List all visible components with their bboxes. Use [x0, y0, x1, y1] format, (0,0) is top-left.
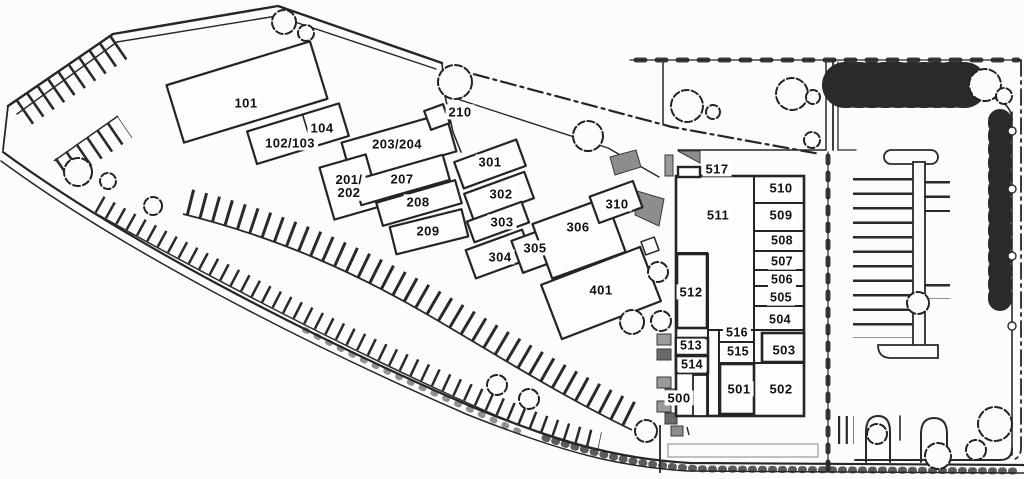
tree — [925, 443, 951, 469]
shaded-patch — [610, 150, 641, 175]
parking-island — [913, 162, 925, 348]
tree — [651, 311, 671, 331]
building-label-306[interactable]: 306 — [564, 219, 593, 234]
sidewalk-strip — [668, 444, 818, 457]
parking-island — [878, 345, 938, 358]
building-label-208[interactable]: 208 — [404, 194, 433, 209]
building-label-505[interactable]: 505 — [767, 291, 795, 306]
unit-500-strip — [693, 375, 707, 416]
parking-island — [884, 150, 938, 164]
tree — [620, 310, 644, 334]
tree — [635, 420, 657, 442]
tree — [804, 132, 820, 148]
building-label-506[interactable]: 506 — [768, 273, 796, 288]
tree — [100, 173, 116, 189]
tree — [978, 407, 1012, 441]
building-label-210[interactable]: 210 — [446, 104, 475, 119]
building-label-509[interactable]: 509 — [767, 207, 796, 222]
building-label-304[interactable]: 304 — [486, 249, 515, 264]
building-label-500[interactable]: 500 — [665, 390, 694, 405]
tree — [806, 90, 820, 104]
tree — [867, 424, 887, 444]
tree — [776, 78, 808, 110]
building-label-512[interactable]: 512 — [677, 284, 706, 299]
tree — [648, 262, 668, 282]
tree — [671, 90, 703, 122]
building-label-209[interactable]: 209 — [414, 223, 443, 238]
building-label-302[interactable]: 302 — [487, 186, 516, 201]
tree — [519, 389, 539, 409]
parking-row — [24, 46, 121, 113]
shaded-patch — [678, 151, 700, 163]
building-label-507[interactable]: 507 — [768, 255, 796, 270]
building-label-515[interactable]: 515 — [724, 345, 752, 360]
site-plan-drawing — [0, 0, 1024, 479]
site-plan: 101 102/103 104 201/ 202 203/204 207 208… — [0, 0, 1024, 479]
building-label-305[interactable]: 305 — [521, 240, 550, 255]
tree — [487, 375, 507, 395]
tree — [298, 25, 314, 41]
tree — [907, 292, 929, 314]
shaded-patch — [665, 155, 673, 176]
building-label-517[interactable]: 517 — [703, 161, 732, 176]
building-label-104[interactable]: 104 — [308, 120, 337, 135]
tree — [144, 197, 162, 215]
building-label-310[interactable]: 310 — [603, 196, 632, 211]
building-label-510[interactable]: 510 — [767, 180, 796, 195]
tree — [438, 65, 472, 99]
dash-dot-property-line — [447, 67, 820, 154]
building-label-301[interactable]: 301 — [476, 154, 505, 169]
building-label-303[interactable]: 303 — [488, 214, 517, 229]
building-label-511[interactable]: 511 — [704, 207, 732, 222]
tree — [966, 440, 986, 460]
tree — [573, 121, 603, 151]
building-label-503[interactable]: 503 — [770, 342, 799, 357]
tree — [996, 88, 1012, 104]
building-label-513[interactable]: 513 — [677, 339, 705, 354]
building-label-201-202[interactable]: 201/ 202 — [333, 172, 366, 201]
shed-footprint — [641, 237, 659, 255]
building-label-514[interactable]: 514 — [678, 358, 706, 373]
building-label-101[interactable]: 101 — [232, 95, 261, 110]
building-label-102-103[interactable]: 102/103 — [262, 135, 318, 150]
building-label-207[interactable]: 207 — [388, 171, 417, 186]
building-label-516[interactable]: 516 — [723, 326, 751, 341]
building-label-504[interactable]: 504 — [766, 313, 794, 328]
building-label-401[interactable]: 401 — [587, 282, 616, 297]
tree — [706, 105, 720, 119]
building-label-501[interactable]: 501 — [725, 381, 754, 396]
tree — [272, 10, 296, 34]
parking-lot-east — [833, 60, 1016, 462]
building-label-203-204[interactable]: 203/204 — [369, 136, 425, 151]
building-label-502[interactable]: 502 — [767, 381, 796, 396]
tree — [64, 158, 92, 186]
unit-517-footprint — [678, 167, 700, 177]
building-label-508[interactable]: 508 — [768, 234, 796, 249]
